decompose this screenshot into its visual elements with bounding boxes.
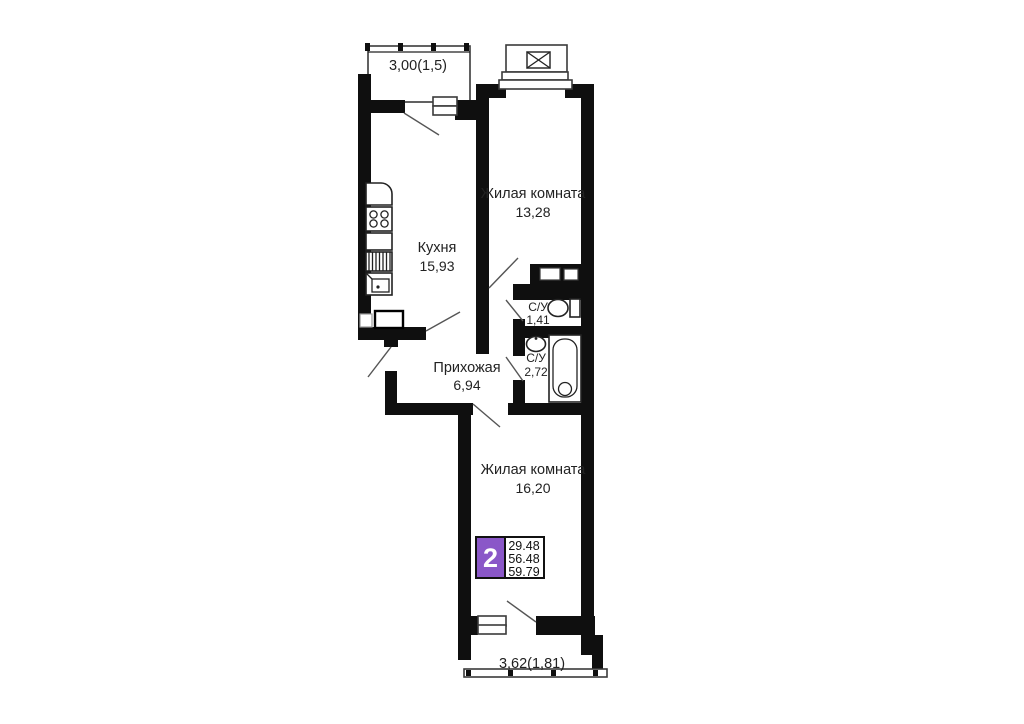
wall-segment — [536, 616, 595, 635]
stove-icon — [366, 207, 392, 231]
living-bottom-area: 16,20 — [515, 480, 550, 496]
door-swing-living-bottom — [473, 404, 500, 427]
balcony-door-threshold — [433, 106, 457, 115]
balcony-door-threshold — [478, 625, 506, 634]
hallway-name: Прихожая — [433, 360, 500, 376]
badge-living-area: 29.48 — [508, 539, 539, 553]
wall-segment — [385, 371, 397, 415]
railing-post-icon — [593, 670, 598, 676]
window-icon — [499, 80, 572, 89]
sink-drain — [376, 285, 379, 288]
railing-post-icon — [431, 43, 436, 51]
railing-post-icon — [365, 43, 370, 51]
door-swing-living-top — [489, 258, 518, 288]
balcony-door-threshold — [433, 97, 457, 106]
hallway-area: 6,94 — [453, 377, 480, 393]
kitchen-area: 15,93 — [419, 258, 454, 274]
wall-segment — [513, 284, 581, 300]
apartment-badge: 2 29.48 56.48 59.79 — [476, 537, 544, 579]
living-top-area: 13,28 — [515, 204, 550, 220]
door-swing-balcony-bottom — [507, 601, 536, 622]
kitchen-vent-box — [375, 311, 403, 328]
floor-plan-drawing: 3,00(1,5) Кухня 15,93 Жилая комната 13,2… — [0, 0, 1024, 724]
badge-total-area: 59.79 — [508, 565, 539, 579]
badge-apartment-area: 56.48 — [508, 552, 539, 566]
badge-rooms-count: 2 — [483, 543, 498, 573]
balcony-top-label: 3,00(1,5) — [389, 58, 447, 74]
kitchen-counter — [366, 233, 392, 250]
wall-segment — [581, 84, 594, 655]
toilet-icon — [548, 300, 568, 317]
railing-post-icon — [398, 43, 403, 51]
door-swing-balcony-kitchen — [404, 113, 439, 135]
living-bottom-name: Жилая комната — [481, 462, 587, 478]
wall-segment — [476, 84, 489, 354]
floor-plan-page: 3,00(1,5) Кухня 15,93 Жилая комната 13,2… — [0, 0, 1024, 724]
railing-post-icon — [464, 43, 469, 51]
wall-segment — [592, 635, 603, 671]
door-swing-wc-small — [506, 300, 523, 321]
fridge-icon — [366, 183, 392, 205]
wall-segment — [458, 403, 471, 660]
bathroom-name: С/У — [526, 351, 546, 365]
washbasin-faucet — [535, 337, 538, 340]
door-swing-kitchen — [426, 312, 460, 331]
kitchen-name: Кухня — [418, 240, 457, 256]
vent-opening-icon — [564, 269, 578, 280]
vent-opening-icon — [540, 268, 560, 280]
wall-segment — [455, 100, 477, 120]
wall-segment — [513, 338, 525, 356]
door-swing-bathroom — [506, 357, 523, 381]
wall-segment — [508, 403, 581, 415]
duct-box — [360, 314, 372, 327]
balcony-railing — [368, 46, 470, 102]
balcony-bottom-label: 3,62(1,81) — [499, 656, 565, 672]
bathroom-area: 2,72 — [524, 365, 548, 379]
toilet-tank — [570, 299, 580, 317]
railing-post-icon — [466, 670, 471, 676]
window-sill — [502, 72, 568, 80]
living-top-name: Жилая комната — [481, 186, 587, 202]
wc-small-area: 1,41 — [526, 313, 550, 327]
wc-small-name: С/У — [528, 300, 548, 314]
drainer-hatch — [369, 252, 390, 271]
wall-segment — [471, 616, 478, 635]
wall-segment — [358, 100, 405, 113]
